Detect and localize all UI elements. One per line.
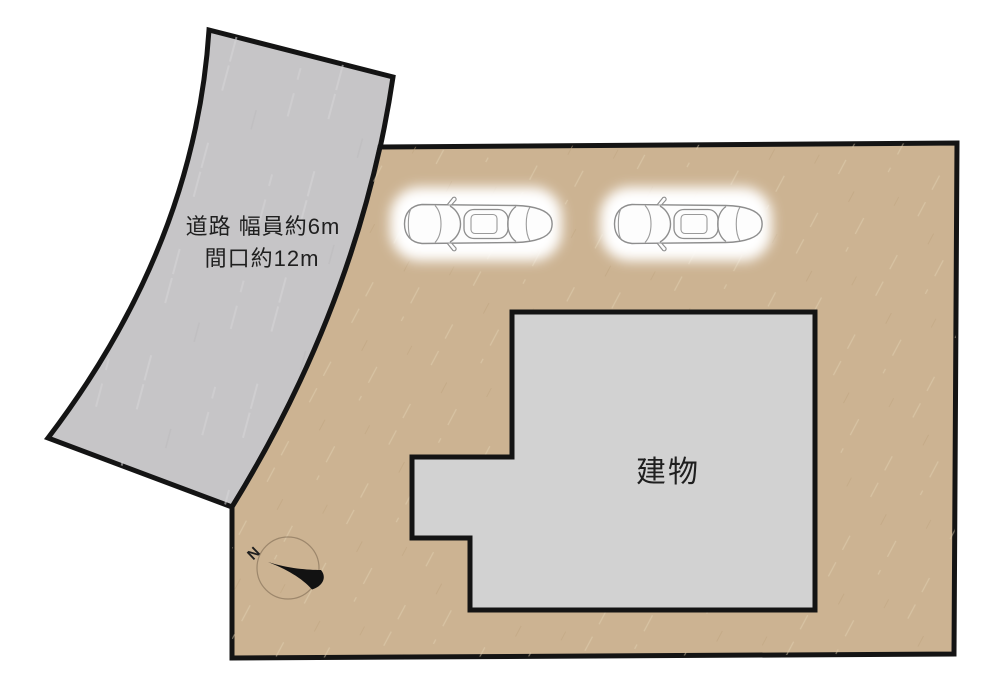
car-icon xyxy=(390,187,562,261)
site-plan-drawing: N 道路 幅員約6m 間口約12m 建物 xyxy=(0,0,1000,689)
road-label-line1: 道路 幅員約6m xyxy=(186,214,341,239)
building-label: 建物 xyxy=(636,456,700,489)
road-label-line2: 間口約12m xyxy=(205,246,320,271)
car-icon xyxy=(600,187,772,261)
site-plan: N 道路 幅員約6m 間口約12m 建物 xyxy=(0,0,1000,689)
